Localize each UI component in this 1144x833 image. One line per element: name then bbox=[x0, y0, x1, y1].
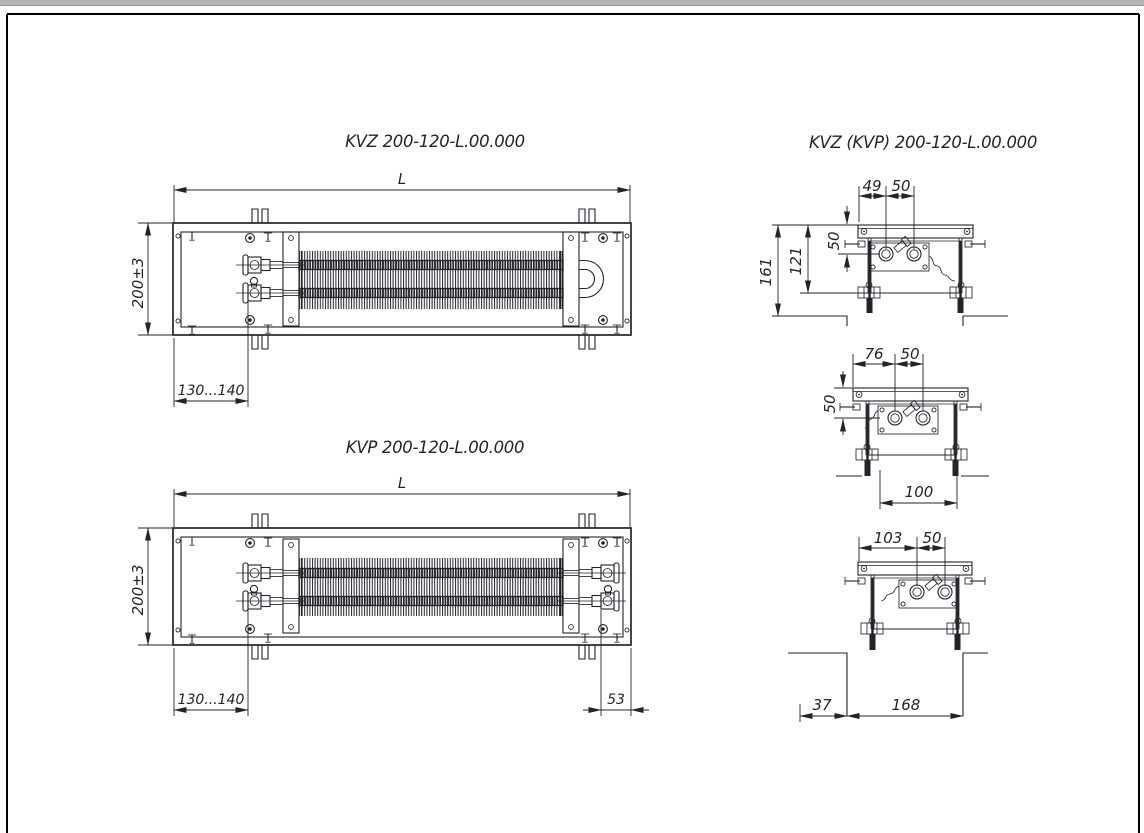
kvp-dim-width: 200±3 bbox=[129, 528, 173, 645]
svg-text:L: L bbox=[398, 474, 406, 492]
section-middle-body bbox=[836, 388, 989, 476]
section-bottom: 103 50 bbox=[788, 529, 988, 722]
technical-drawing: KVZ 200-120-L.00.000 L bbox=[0, 0, 1144, 833]
section-top: 49 50 bbox=[757, 177, 1008, 326]
section-top-dims-left: 161 121 50 bbox=[757, 206, 880, 316]
svg-text:49: 49 bbox=[862, 177, 881, 195]
svg-text:37: 37 bbox=[812, 696, 832, 714]
svg-text:50: 50 bbox=[922, 529, 941, 547]
kvp-valves-left bbox=[236, 563, 305, 611]
svg-text:50: 50 bbox=[821, 394, 839, 413]
kvz-heat-exchanger bbox=[283, 232, 604, 326]
kvp-plan-view: KVP 200-120-L.00.000 L bbox=[129, 438, 649, 716]
kvp-valves-right bbox=[557, 563, 626, 611]
anchor-pin bbox=[865, 460, 871, 476]
anchor-pin bbox=[958, 298, 964, 313]
section-bottom-dims-bottom: 37 168 bbox=[800, 696, 963, 722]
svg-text:168: 168 bbox=[892, 696, 921, 714]
fins bbox=[299, 251, 563, 309]
floor-line bbox=[772, 316, 1008, 326]
svg-text:50: 50 bbox=[825, 231, 843, 250]
section-bottom-body bbox=[788, 562, 988, 716]
kvp-dim-connection-offset: 130...140 bbox=[174, 608, 248, 716]
svg-text:130...140: 130...140 bbox=[178, 383, 245, 399]
svg-text:121: 121 bbox=[787, 247, 805, 276]
svg-text:L: L bbox=[398, 170, 406, 188]
section-middle-dim-bottom: 100 bbox=[880, 470, 957, 509]
kvz-dim-length: L bbox=[174, 170, 630, 222]
svg-text:130...140: 130...140 bbox=[178, 692, 245, 708]
anchor-pin bbox=[867, 298, 873, 313]
fins bbox=[299, 558, 563, 616]
kvz-title: KVZ 200-120-L.00.000 bbox=[345, 132, 525, 151]
kvp-title: KVP 200-120-L.00.000 bbox=[346, 438, 524, 457]
u-bend bbox=[579, 261, 604, 298]
kvp-heat-exchanger bbox=[283, 539, 579, 633]
sections-title: KVZ (KVP) 200-120-L.00.000 bbox=[809, 133, 1037, 152]
svg-text:100: 100 bbox=[905, 483, 934, 501]
svg-text:53: 53 bbox=[607, 692, 625, 708]
drain-hose bbox=[929, 256, 955, 281]
drain-hose bbox=[881, 586, 899, 601]
anchor-pin bbox=[870, 634, 876, 650]
section-middle: 76 50 bbox=[821, 345, 989, 509]
kvz-plan-view: KVZ 200-120-L.00.000 L bbox=[129, 132, 631, 407]
kvz-dim-connection-offset: 130...140 bbox=[174, 300, 248, 407]
svg-text:76: 76 bbox=[864, 345, 883, 363]
svg-text:200±3: 200±3 bbox=[129, 258, 147, 309]
svg-text:161: 161 bbox=[757, 258, 775, 287]
anchor-pin bbox=[955, 634, 961, 650]
section-top-body bbox=[772, 225, 1008, 326]
sections-view: KVZ (KVP) 200-120-L.00.000 49 50 bbox=[757, 133, 1037, 722]
kvz-dim-width: 200±3 bbox=[129, 223, 173, 335]
kvp-dim-end-offset: 53 bbox=[583, 610, 649, 716]
svg-text:50: 50 bbox=[891, 177, 910, 195]
svg-text:103: 103 bbox=[874, 529, 903, 547]
anchor-pin bbox=[953, 460, 959, 476]
kvp-dim-length: L bbox=[174, 474, 630, 527]
kvz-valves bbox=[236, 255, 305, 303]
svg-text:200±3: 200±3 bbox=[129, 565, 147, 616]
svg-text:50: 50 bbox=[900, 345, 919, 363]
section-middle-dim-left: 50 bbox=[821, 371, 880, 435]
drawing-sheet: KVZ 200-120-L.00.000 L bbox=[0, 0, 1144, 833]
